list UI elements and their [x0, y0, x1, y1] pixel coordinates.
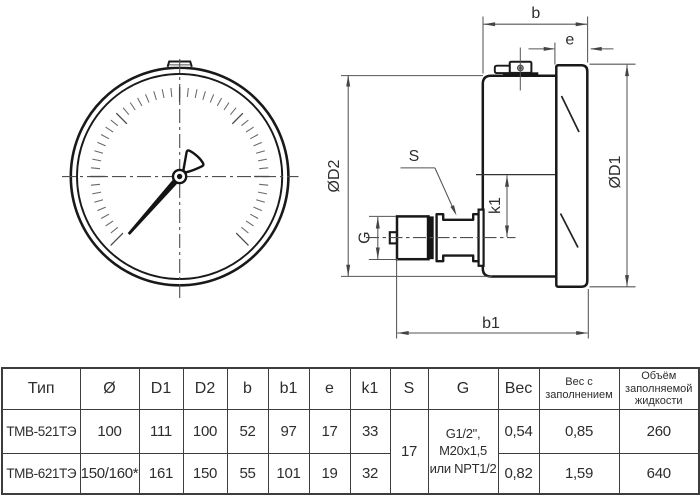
svg-text:ØD1: ØD1 [607, 155, 624, 188]
svg-text:b: b [531, 5, 540, 22]
svg-text:G: G [356, 231, 373, 243]
svg-text:k1: k1 [487, 197, 504, 214]
svg-text:e: e [565, 32, 574, 49]
svg-text:ØD2: ØD2 [326, 159, 343, 192]
svg-text:S: S [409, 148, 420, 165]
svg-text:b1: b1 [482, 315, 500, 332]
